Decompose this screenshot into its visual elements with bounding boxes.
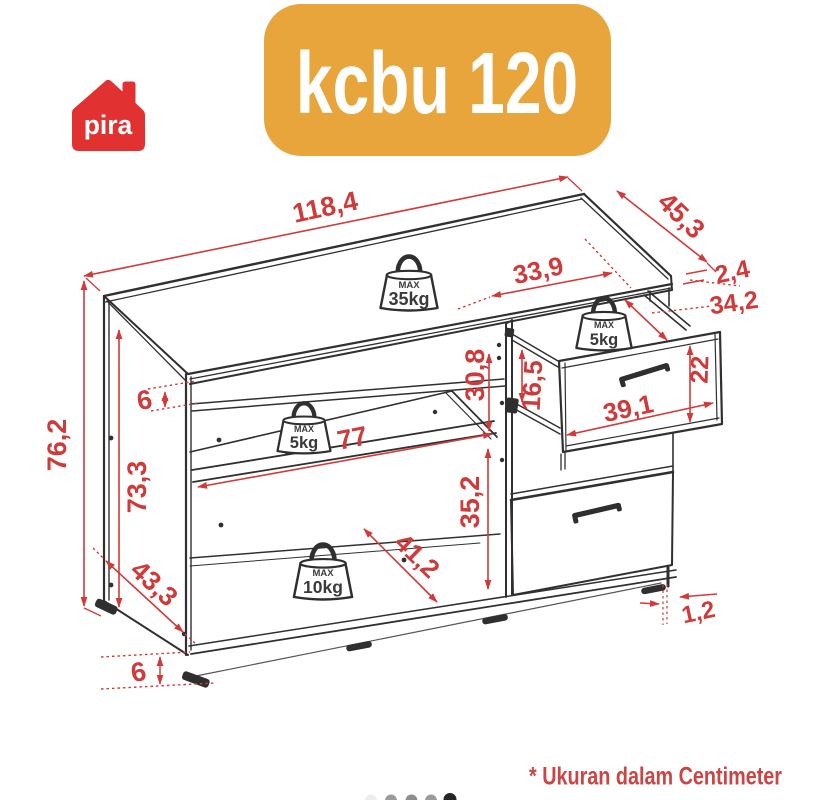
svg-text:22: 22 — [686, 355, 715, 384]
svg-text:30,8: 30,8 — [460, 349, 490, 402]
svg-text:76,2: 76,2 — [42, 419, 72, 472]
svg-text:MAX: MAX — [294, 424, 314, 434]
svg-text:* Ukuran dalam Centimeter: * Ukuran dalam Centimeter — [529, 762, 782, 789]
svg-text:73,3: 73,3 — [122, 461, 152, 514]
svg-text:5kg: 5kg — [590, 331, 618, 349]
svg-text:5kg: 5kg — [290, 434, 318, 452]
svg-text:16,5: 16,5 — [516, 359, 549, 411]
svg-text:35kg: 35kg — [388, 289, 429, 309]
svg-text:kcbu 120: kcbu 120 — [296, 35, 578, 132]
svg-text:pira: pira — [84, 110, 133, 140]
svg-text:MAX: MAX — [594, 320, 614, 330]
svg-text:10kg: 10kg — [303, 577, 343, 597]
svg-text:77: 77 — [335, 421, 370, 456]
svg-text:35,2: 35,2 — [455, 476, 485, 529]
